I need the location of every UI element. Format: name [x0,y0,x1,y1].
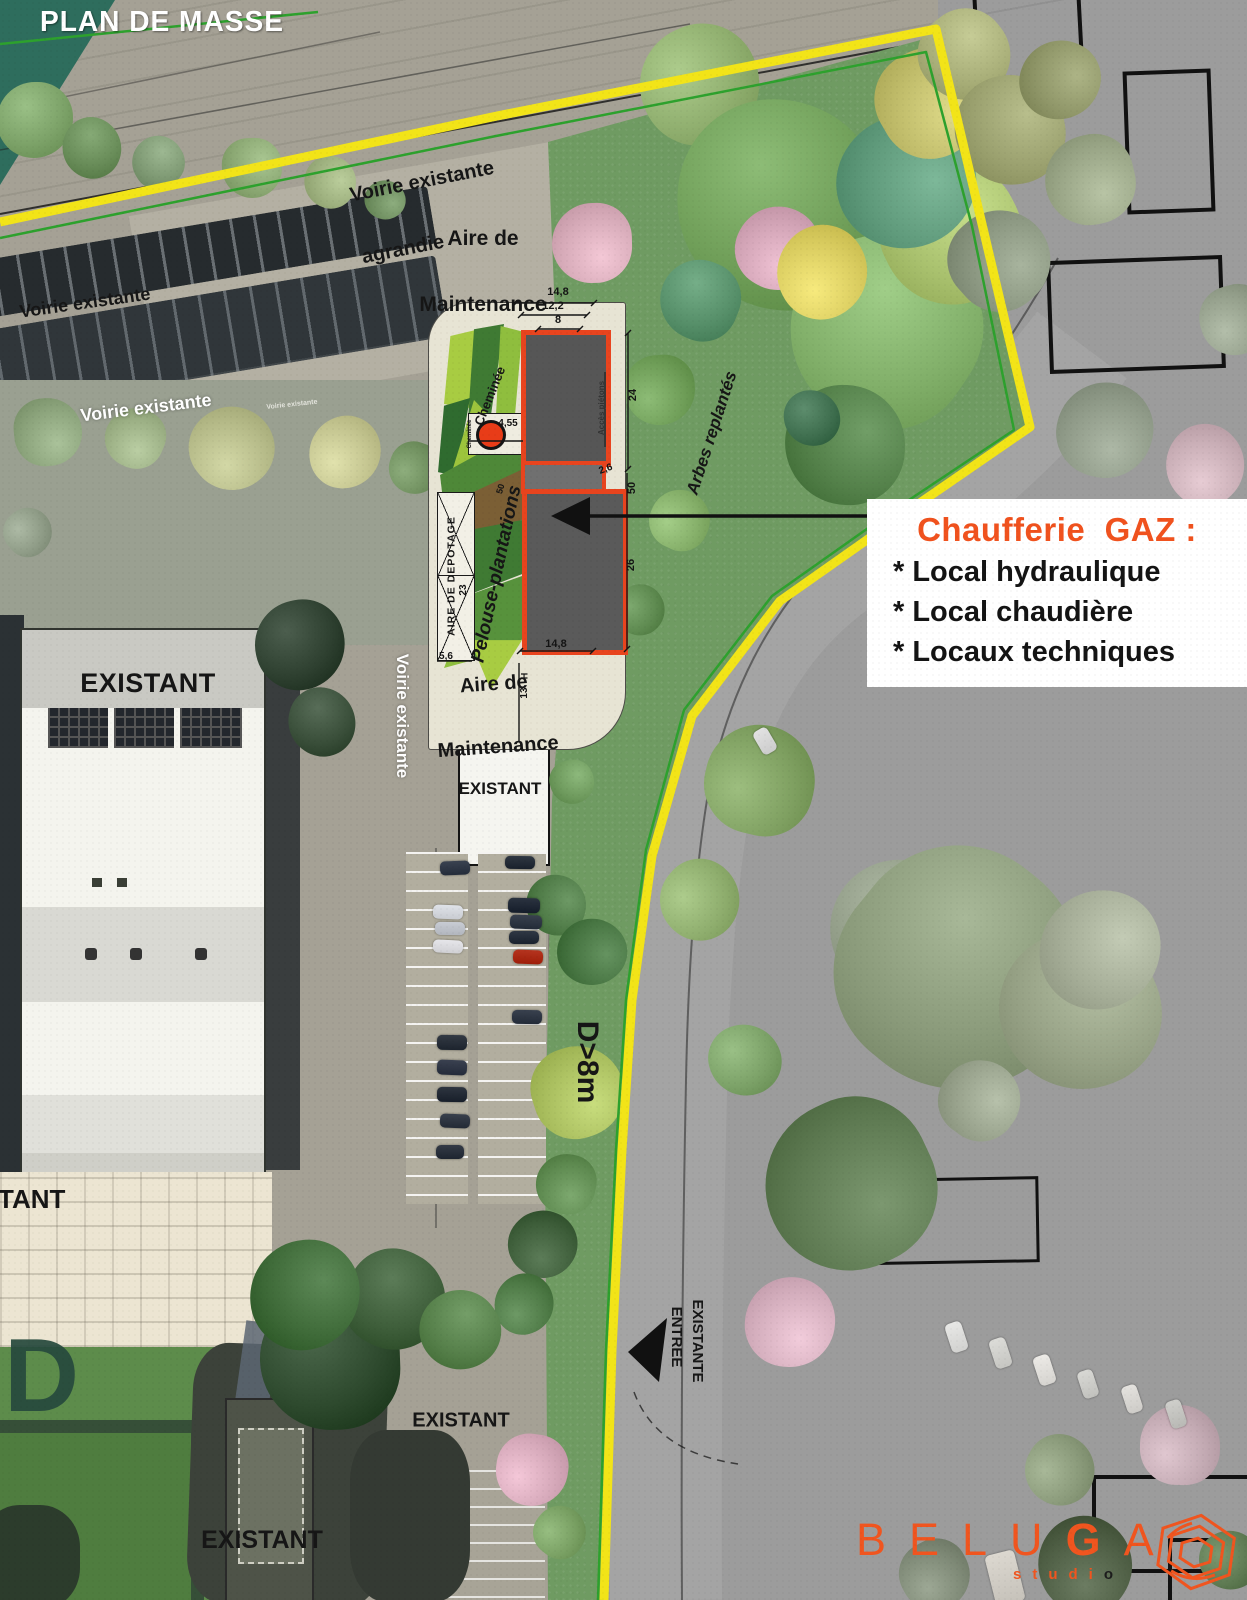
car-layer [0,0,1247,1600]
car [944,1320,969,1354]
label-aire-depotage: AIRE DE DEPOTAGE [446,516,457,636]
label-entree-line2: EXISTANTE [689,1299,705,1382]
car [505,856,535,870]
dim-label: 26 [626,559,638,571]
car [1164,1398,1188,1430]
logo-text: o [1104,1566,1124,1583]
car [508,898,540,914]
label-line: Maintenance [437,733,559,762]
label-acces-pietons: Accès piétons [598,381,606,435]
label-existant-center: EXISTANT [459,780,542,798]
callout-item: * Local hydraulique [893,556,1247,589]
car [437,1087,467,1103]
dim-label: 13 [520,687,531,698]
dim-label: 23 [459,584,470,595]
label-aire-maintenance-top: Aire de Maintenance [419,184,546,360]
car [512,1010,542,1025]
dim-label: 4,55 [498,419,517,430]
dim-label: 14,8 [545,639,566,651]
logo-text: studi [1013,1566,1104,1583]
car [440,1113,470,1128]
watermark-letter: D [4,1322,79,1431]
car [440,860,470,875]
dim-label: 5,6 [439,652,453,663]
logo-text-bold: G [1066,1514,1124,1565]
logo-beluga: BELUGA [856,1514,1177,1566]
car [988,1336,1013,1370]
chaufferie-callout: Chaufferie GAZ : * Local hydraulique * L… [867,499,1247,687]
callout-item: * Locaux techniques [893,636,1247,669]
site-plan-canvas: PLAN DE MASSE Voirie existante Voirie ex… [0,0,1247,1600]
logo-text: A [1124,1514,1177,1565]
label-existant-partial: TANT [0,1186,65,1213]
car [509,931,539,944]
dim-label: 8 [555,315,561,327]
car [1120,1383,1144,1415]
car [435,922,465,936]
dim-label: 12,2 [542,301,563,313]
car [433,904,463,919]
label-cheminee-small: Cheminée [467,420,473,449]
car [513,949,543,964]
dim-label: H [520,673,529,680]
car [436,1145,464,1159]
car [1032,1353,1057,1387]
car [433,939,464,954]
car [437,1059,468,1075]
car [1076,1368,1100,1400]
callout-heading: Chaufferie GAZ : [867,511,1247,549]
dim-label: 14,8 [547,287,568,299]
label-d8m: D>8m [571,1021,603,1104]
label-existant-right: EXISTANT [412,1411,509,1432]
label-entree-line1: ENTREE [668,1307,684,1368]
logo-text: BELU [856,1514,1066,1565]
car [510,914,542,929]
car [752,726,779,757]
callout-item: * Local chaudière [893,596,1247,629]
label-line: Maintenance [419,294,546,316]
dim-label: 24 [628,389,640,401]
dim-label: 50 [627,482,639,494]
label-line: Aire de [419,228,546,250]
page-title: PLAN DE MASSE [40,6,284,39]
label-line: Aire de [433,670,555,699]
logo-studio: studio [1013,1566,1124,1583]
label-existant-left: EXISTANT [80,669,216,697]
label-voirie-vertical: Voirie existante [393,654,411,778]
label-existant-bottom: EXISTANT [201,1527,323,1553]
car [437,1035,467,1051]
